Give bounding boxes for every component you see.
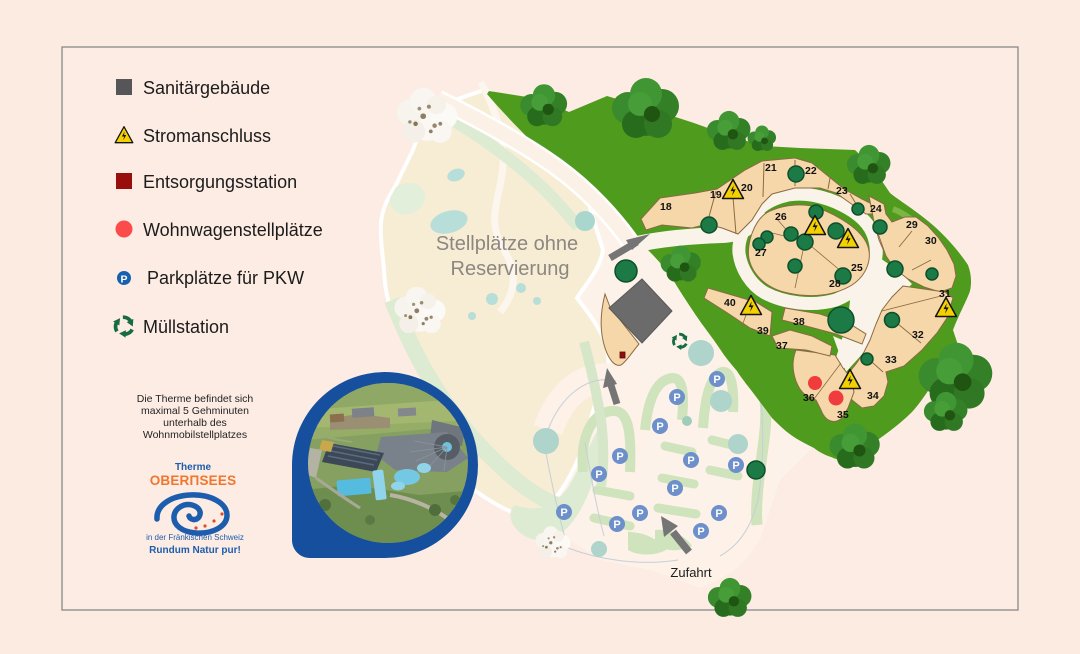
svg-text:Reservierung: Reservierung	[451, 258, 570, 280]
svg-text:22: 22	[805, 165, 817, 177]
svg-text:38: 38	[793, 316, 805, 328]
svg-text:26: 26	[775, 211, 787, 223]
svg-text:Stellplätze ohne: Stellplätze ohne	[436, 233, 578, 255]
svg-text:Parkplätze für PKW: Parkplätze für PKW	[147, 268, 304, 288]
svg-text:31: 31	[939, 288, 951, 300]
svg-text:P: P	[120, 274, 127, 286]
svg-text:28: 28	[829, 278, 841, 290]
svg-text:unterhalb des: unterhalb des	[163, 417, 227, 429]
svg-text:37: 37	[776, 340, 788, 352]
svg-text:Therme: Therme	[175, 462, 212, 473]
svg-text:18: 18	[660, 201, 672, 213]
svg-text:20: 20	[741, 182, 753, 194]
svg-text:25: 25	[851, 262, 863, 274]
svg-text:Rundum Natur pur!: Rundum Natur pur!	[149, 545, 241, 556]
svg-text:Sanitärgebäude: Sanitärgebäude	[143, 78, 270, 98]
svg-text:maximal 5 Gehminuten: maximal 5 Gehminuten	[141, 405, 249, 417]
svg-text:Zufahrt: Zufahrt	[670, 565, 712, 580]
svg-text:21: 21	[765, 162, 777, 174]
svg-text:Stromanschluss: Stromanschluss	[143, 126, 271, 146]
svg-text:Entsorgungsstation: Entsorgungsstation	[143, 172, 297, 192]
svg-text:Die Therme befindet sich: Die Therme befindet sich	[137, 393, 254, 405]
svg-text:34: 34	[867, 390, 879, 402]
svg-text:OBERΠSEES: OBERΠSEES	[150, 473, 237, 488]
svg-text:24: 24	[870, 203, 882, 215]
svg-text:23: 23	[836, 185, 848, 197]
svg-text:30: 30	[925, 235, 937, 247]
svg-text:32: 32	[912, 329, 924, 341]
svg-text:36: 36	[803, 392, 815, 404]
svg-text:Müllstation: Müllstation	[143, 317, 229, 337]
svg-text:39: 39	[757, 325, 769, 337]
svg-text:19: 19	[710, 189, 722, 201]
svg-text:35: 35	[837, 409, 849, 421]
svg-text:in der Fränkischen Schweiz: in der Fränkischen Schweiz	[146, 533, 244, 542]
svg-text:40: 40	[724, 297, 736, 309]
svg-text:27: 27	[755, 247, 767, 259]
svg-text:33: 33	[885, 354, 897, 366]
svg-text:Wohnmobilstellplatzes: Wohnmobilstellplatzes	[143, 429, 247, 441]
svg-text:Wohnwagenstellplätze: Wohnwagenstellplätze	[143, 220, 323, 240]
svg-text:29: 29	[906, 219, 918, 231]
